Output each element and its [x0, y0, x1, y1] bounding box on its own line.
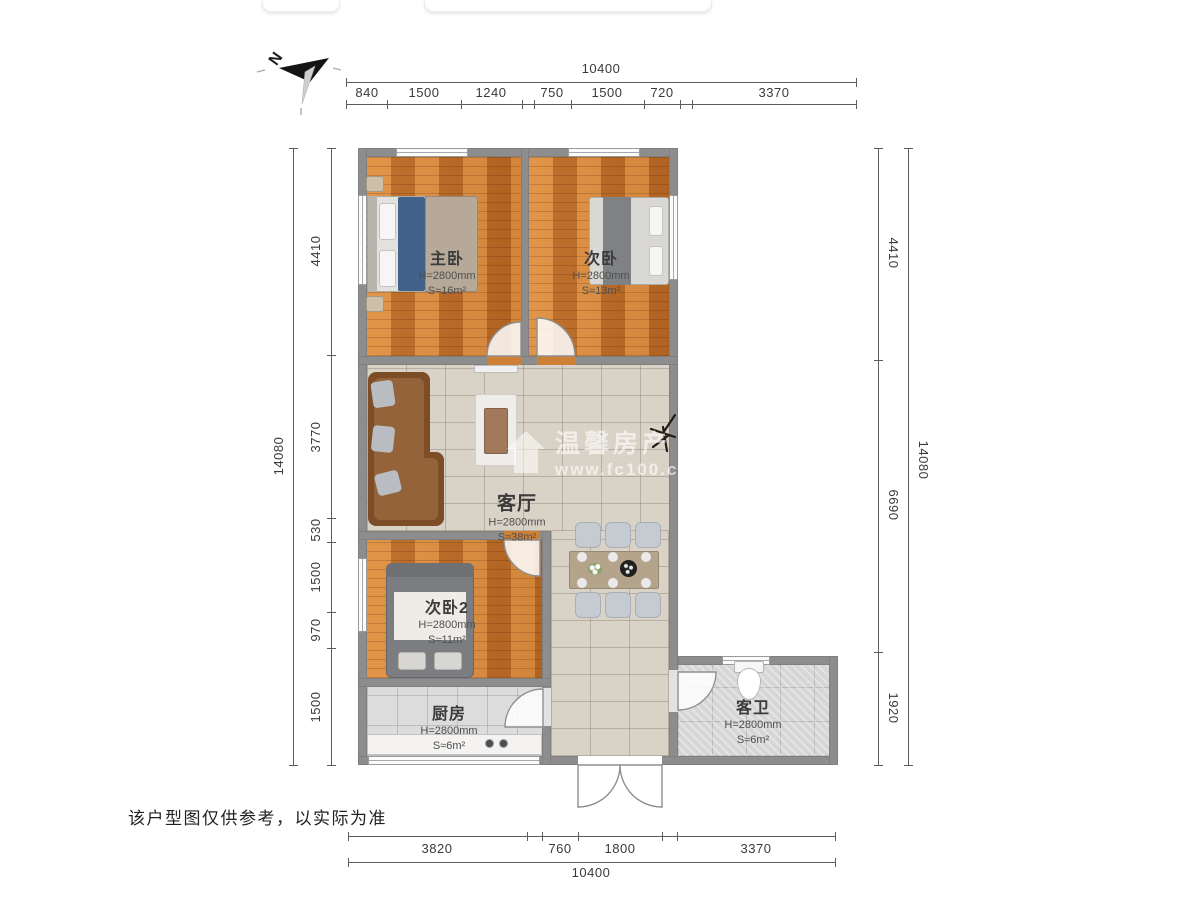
- dining-plate: [577, 578, 587, 588]
- room-area: S≈6m²: [724, 733, 781, 748]
- room-label-bathroom: 客卫 H=2800mm S≈6m²: [724, 694, 781, 748]
- top-cutoff-button-large[interactable]: [424, 0, 712, 12]
- dining-plate: [608, 552, 618, 562]
- dim-right-total: 14080: [916, 430, 930, 490]
- master-bed-pillow: [379, 203, 396, 240]
- sofa-pillow: [370, 380, 395, 409]
- room-height: H=2800mm: [418, 269, 475, 284]
- room-name: 次卧: [572, 245, 629, 269]
- dim-top-seg: 1500: [577, 86, 637, 100]
- dim-top-seg: 1500: [394, 86, 454, 100]
- dim-line: [346, 82, 857, 83]
- dim-top-total: 10400: [571, 62, 631, 76]
- window-second-top: [568, 148, 640, 157]
- entry-door-gap: [578, 756, 662, 765]
- window-bedroom2-left: [358, 558, 367, 632]
- room-name: 客卫: [724, 694, 781, 718]
- swallow-decor-icon: [645, 413, 679, 453]
- stove-burner: [499, 739, 508, 748]
- master-nightstand-bottom: [366, 296, 384, 312]
- master-bed-headboard: [368, 196, 377, 292]
- wall-bedroom-divider: [521, 148, 529, 365]
- room-height: H=2800mm: [572, 269, 629, 284]
- window-master-left: [358, 195, 367, 285]
- dim-left-seg: 1500: [309, 547, 323, 607]
- room-area: S≈11m²: [418, 633, 475, 648]
- dining-chair: [575, 522, 601, 548]
- room-name: 厨房: [420, 700, 477, 724]
- dining-plate: [641, 552, 651, 562]
- window-kitchen-bottom: [368, 756, 540, 765]
- bedroom2-bed-pillow: [398, 652, 426, 670]
- disclaimer-text: 该户型图仅供参考，以实际为准: [128, 804, 387, 829]
- wall-bathroom-right: [829, 656, 838, 765]
- master-door-gap: [487, 356, 521, 365]
- top-cutoff-button-small[interactable]: [262, 0, 340, 12]
- dim-left-seg: 970: [309, 600, 323, 660]
- window-master-top: [396, 148, 468, 157]
- dim-line: [878, 148, 879, 765]
- dim-top-seg: 750: [522, 86, 582, 100]
- second-bed-pillow: [649, 246, 663, 276]
- dining-plate: [608, 578, 618, 588]
- second-bed-pillow: [649, 206, 663, 236]
- bathroom-door-gap: [669, 670, 678, 712]
- dim-right-seg: 6690: [886, 475, 900, 535]
- room-height: H=2800mm: [420, 724, 477, 739]
- bedroom2-bed-headboard: [386, 563, 474, 577]
- room-height: H=2800mm: [724, 718, 781, 733]
- room-name: 客厅: [488, 489, 545, 516]
- dining-chair: [635, 522, 661, 548]
- dim-right-seg: 1920: [886, 678, 900, 738]
- room-area: S≈16m²: [418, 284, 475, 299]
- room-name: 次卧2: [418, 594, 475, 618]
- room-area: S≈13m²: [572, 284, 629, 299]
- dim-line: [348, 836, 835, 837]
- dining-plate: [577, 552, 587, 562]
- room-area: S≈6m²: [420, 739, 477, 754]
- coffee-table: [484, 408, 508, 454]
- dim-left-seg: 3770: [309, 407, 323, 467]
- north-letter: N: [266, 49, 287, 68]
- dim-line: [908, 148, 909, 765]
- master-bed-pillow: [379, 250, 396, 287]
- dim-top-seg: 720: [632, 86, 692, 100]
- room-label-second: 次卧 H=2800mm S≈13m²: [572, 245, 629, 299]
- north-arrow-icon: N: [255, 38, 345, 118]
- master-nightstand-top: [366, 176, 384, 192]
- dining-chair: [635, 592, 661, 618]
- dim-bottom-seg: 3820: [407, 842, 467, 856]
- dim-bottom-seg: 760: [530, 842, 590, 856]
- dim-line: [331, 148, 332, 765]
- room-area: S≈38m²: [488, 531, 545, 546]
- dim-left-total: 14080: [272, 426, 286, 486]
- dim-left-seg: 1500: [309, 677, 323, 737]
- dim-top-seg: 1240: [461, 86, 521, 100]
- dim-bottom-total: 10400: [561, 866, 621, 880]
- dining-chair: [575, 592, 601, 618]
- wall-bedroom2-kitchen: [358, 678, 551, 687]
- dim-top-seg: 3370: [744, 86, 804, 100]
- dim-line: [346, 104, 857, 105]
- dining-flowers: [588, 563, 602, 575]
- room-label-master: 主卧 H=2800mm S≈16m²: [418, 245, 475, 299]
- dining-chair: [605, 522, 631, 548]
- dim-bottom-seg: 1800: [590, 842, 650, 856]
- room-label-living: 客厅 H=2800mm S≈38m²: [488, 489, 545, 546]
- room-name: 主卧: [418, 245, 475, 269]
- dim-line: [293, 148, 294, 765]
- second-door-gap: [537, 356, 575, 365]
- room-label-kitchen: 厨房 H=2800mm S≈6m²: [420, 700, 477, 754]
- dim-bottom-seg: 3370: [726, 842, 786, 856]
- dim-right-seg: 4410: [886, 223, 900, 283]
- dim-top-seg: 840: [337, 86, 397, 100]
- dining-hotpot: [620, 560, 637, 577]
- dining-plate: [641, 578, 651, 588]
- bedroom2-bed-pillow: [434, 652, 462, 670]
- floorplan-page: 温馨房产 www.fc100.cn 主卧 H=2800mm S≈16m² 次卧 …: [0, 0, 1200, 900]
- north-arrow: N: [255, 38, 345, 118]
- wall-hall-divider: [542, 531, 551, 765]
- dim-left-seg: 4410: [309, 221, 323, 281]
- window-second-right: [669, 195, 678, 280]
- dim-line: [348, 862, 835, 863]
- stove-burner: [485, 739, 494, 748]
- tv-cabinet: [474, 365, 518, 373]
- sofa-pillow: [371, 425, 396, 453]
- room-label-second2: 次卧2 H=2800mm S≈11m²: [418, 594, 475, 648]
- kitchen-door-gap: [542, 688, 551, 726]
- dining-chair: [605, 592, 631, 618]
- room-height: H=2800mm: [418, 618, 475, 633]
- room-height: H=2800mm: [488, 516, 545, 531]
